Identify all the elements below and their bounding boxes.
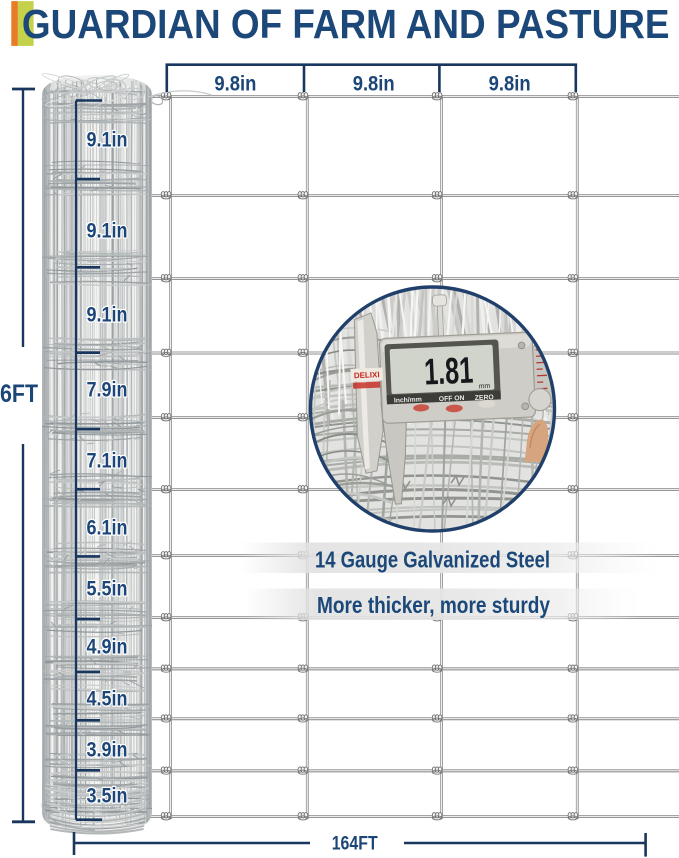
svg-text:3.9in: 3.9in xyxy=(87,739,128,762)
svg-text:5.5in: 5.5in xyxy=(87,578,128,601)
svg-text:9.8in: 9.8in xyxy=(214,73,256,96)
svg-text:mm: mm xyxy=(479,383,491,391)
svg-text:9.1in: 9.1in xyxy=(87,220,128,243)
svg-text:9.1in: 9.1in xyxy=(87,129,128,152)
svg-text:14 Gauge Galvanized Steel: 14 Gauge Galvanized Steel xyxy=(315,547,550,573)
svg-text:3.5in: 3.5in xyxy=(87,785,128,808)
svg-text:6.1in: 6.1in xyxy=(87,517,128,540)
svg-text:7.9in: 7.9in xyxy=(87,379,128,402)
svg-text:7.1in: 7.1in xyxy=(87,450,128,473)
svg-text:GUARDIAN OF FARM AND PASTURE: GUARDIAN OF FARM AND PASTURE xyxy=(22,1,670,47)
svg-text:1.81: 1.81 xyxy=(423,350,474,393)
svg-text:4.9in: 4.9in xyxy=(87,636,128,659)
svg-text:Inch/mm: Inch/mm xyxy=(394,396,422,404)
svg-text:DELIXI: DELIXI xyxy=(354,370,380,380)
svg-text:4.5in: 4.5in xyxy=(87,688,128,711)
svg-text:9.8in: 9.8in xyxy=(489,73,531,96)
svg-text:9.1in: 9.1in xyxy=(87,304,128,327)
svg-text:More thicker, more sturdy: More thicker, more sturdy xyxy=(317,592,550,618)
svg-text:6FT: 6FT xyxy=(0,380,38,408)
svg-text:OFF ON: OFF ON xyxy=(439,395,465,403)
svg-text:164FT: 164FT xyxy=(332,834,378,855)
svg-text:9.8in: 9.8in xyxy=(353,73,395,96)
